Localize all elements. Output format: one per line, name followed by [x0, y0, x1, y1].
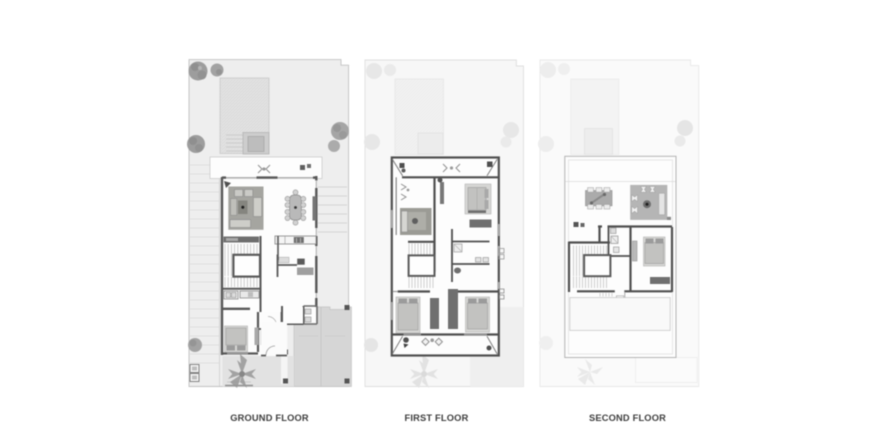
svg-text:GROUND FLOOR: GROUND FLOOR	[230, 413, 309, 423]
svg-text:SECOND FLOOR: SECOND FLOOR	[589, 413, 666, 423]
svg-text:FIRST FLOOR: FIRST FLOOR	[405, 413, 469, 423]
